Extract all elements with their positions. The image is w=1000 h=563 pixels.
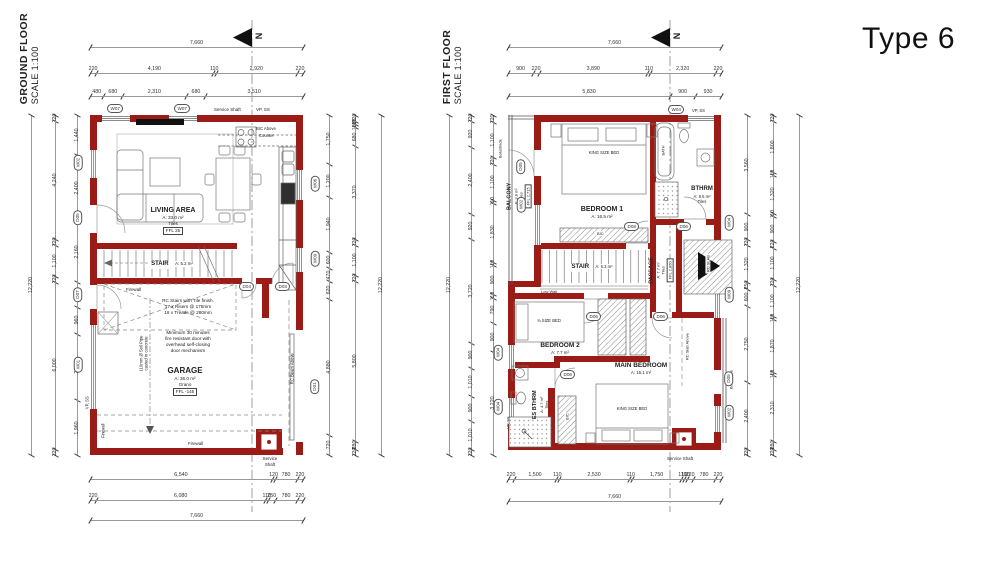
gf-living-block: LIVING AREA A: 33.0 m² Tiles FFL 25 [130, 206, 216, 235]
door-label: D06 [676, 222, 691, 231]
dim-segment: 2,320 [650, 66, 715, 78]
dim-value: 220 [352, 448, 358, 457]
door-label: D06 [586, 312, 601, 321]
dimension-row: 2204,2402201,1002206,000220 [48, 115, 60, 455]
door-label: D08 [624, 222, 639, 231]
dim-segment: 600 [740, 289, 752, 306]
room-area: A: 15.1 m² [598, 370, 684, 376]
ff-main-bed: KING SIZE BED [600, 406, 664, 411]
door-label: D05 [724, 371, 733, 386]
dim-segment: 220 [48, 449, 60, 455]
gf-scale: SCALE 1:100 [30, 4, 40, 104]
dim-segment: 780 [275, 493, 297, 505]
dim-segment: 2,920 [216, 66, 297, 78]
dim-value: 1,100 [490, 175, 496, 188]
dim-segment: 480 [90, 89, 103, 101]
dim-segment: 220 [715, 472, 721, 484]
dim-value: 600 [744, 293, 750, 302]
door-label: D01 [310, 379, 319, 394]
bed-label: KING SIZE BED [600, 406, 664, 411]
dim-segment: 3,560 [740, 115, 752, 214]
ff-esbthrm-block: ES BTHRM A: 4.7 m² Tiles [532, 373, 550, 437]
ff-rc-slab: RC SLAB [705, 244, 710, 284]
dim-value: 1,010 [468, 375, 474, 388]
window-label: W04 [725, 214, 734, 230]
dim-value: 3,560 [744, 158, 750, 171]
dimension-row: 2209202,4009203,7209001,0109001,010220 [464, 115, 476, 455]
dim-segment: 1,320 [766, 175, 778, 212]
room-name: MAIN BEDROOM [598, 362, 684, 370]
dim-segment: 5,800 [348, 281, 360, 441]
dim-value: 1,750 [326, 133, 332, 146]
gf-bic-above-2: Counter [259, 133, 274, 138]
note-line: RC Slab Above [684, 312, 689, 382]
dim-segment: 2,310 [122, 89, 186, 101]
room-finish: Tiles [682, 199, 722, 204]
dim-value: 1,750 [650, 472, 663, 478]
ff-stair-block: STAIR A: 5.3 m² [568, 254, 616, 275]
dim-value: 7,660 [190, 40, 203, 46]
window-label: W04 [494, 344, 503, 360]
dim-segment: 960 [70, 307, 82, 334]
dim-segment: 12,220 [374, 115, 386, 455]
dim-value: 620 [326, 286, 332, 295]
gf-vpss-top: VP, SS [256, 107, 270, 113]
room-ffl: FFL 2,860 [666, 258, 673, 282]
dim-value: 2,310 [770, 401, 776, 414]
room-name: PASSAGE [649, 231, 656, 309]
dim-value: 900 [490, 333, 496, 342]
dim-segment: 1,100 [348, 245, 360, 275]
dim-segment: 900 [464, 343, 476, 368]
room-name: BEDROOM 2 [520, 342, 600, 350]
dim-value: 900 [744, 222, 750, 231]
dim-value: 12,220 [378, 277, 384, 293]
gf-door-note: Minimum 30 minutes fire resistant door w… [140, 330, 236, 354]
room-area: A: 5.2 m² [174, 261, 194, 267]
gf-north-letter: N [253, 33, 263, 40]
dim-segment: 5,830 [508, 89, 670, 101]
note-line: RC Beam Above [289, 329, 294, 409]
door-label: D05 [73, 210, 82, 225]
dimension-row: 3,5609002201,3202506002,7502,400220 [740, 115, 752, 455]
dim-value: 720 [326, 441, 332, 450]
dim-segment: 2,400 [464, 147, 476, 214]
dim-segment: 6,080 [96, 493, 265, 505]
ff-balustrade-balcony: Balustrade [497, 119, 502, 179]
dim-value: 2,750 [744, 337, 750, 350]
dim-value: 900 [490, 275, 496, 284]
dim-segment: 470 [322, 268, 334, 281]
dim-segment: 720 [322, 435, 334, 455]
dim-value: 790 [490, 306, 496, 315]
dim-value: 1,960 [74, 421, 80, 434]
dim-segment: 1,100 [766, 248, 778, 279]
gf-service-shaft-top: Service Shaft [214, 107, 241, 113]
dimension-row: 7,660 [90, 513, 303, 525]
dim-value: 1,320 [744, 257, 750, 270]
dim-segment: 7,660 [508, 40, 721, 52]
window-label: W09 [311, 250, 320, 266]
dim-value: 2,920 [250, 66, 263, 72]
gf-firewall-bottom: Firewall [188, 441, 203, 447]
dim-value: 4,880 [326, 360, 332, 373]
window-label: W02 [74, 154, 83, 170]
dim-value: 220 [52, 448, 58, 457]
gf-stair-block: STAIR A: 5.2 m² [146, 251, 198, 272]
note-line: VP, SS [505, 401, 510, 445]
floor-plan-sheet: Type 6 GROUND FLOOR SCALE 1:100 N FIRST … [0, 0, 1000, 563]
dim-segment: 1,750 [322, 115, 334, 164]
window-label: W04 [494, 398, 503, 414]
dim-segment: 1,750 [632, 472, 681, 484]
dimension-row: 12,220 [24, 115, 36, 455]
note-line: RC SLAB [705, 254, 710, 273]
dim-value: 780 [700, 472, 709, 478]
dim-value: 5,830 [582, 89, 595, 95]
dim-segment: 12,220 [442, 115, 454, 455]
dim-segment: 4,880 [322, 299, 334, 435]
dimension-row: 2201101106803,3702201,1002205,800280220 [348, 115, 360, 455]
dim-value: 220 [296, 493, 305, 499]
dimension-row: 7,660 [508, 40, 721, 52]
dim-segment: 680 [348, 127, 360, 146]
window-label: W02 [725, 404, 734, 420]
dim-segment: 1,100 [486, 122, 498, 157]
door-label: D03 [275, 282, 290, 291]
dim-value: 12,220 [28, 277, 34, 293]
dim-value: 930 [704, 89, 713, 95]
dim-segment: 250 [268, 493, 275, 505]
gf-shaft [261, 434, 277, 450]
dimension-row: 12,220 [792, 115, 804, 455]
room-ffl: FFL 25 [163, 227, 183, 235]
dim-value: 900 [468, 404, 474, 413]
gf-title-block: GROUND FLOOR SCALE 1:100 [18, 4, 40, 104]
bed-label: KING SIZE BED [566, 150, 642, 155]
dim-value: 7,660 [608, 40, 621, 46]
type-label: Type 6 [862, 22, 955, 56]
dim-value: 1,100 [770, 257, 776, 270]
dim-value: 1,440 [74, 128, 80, 141]
dim-value: 1,200 [326, 174, 332, 187]
dim-value: 7,660 [608, 494, 621, 500]
dimension-row: 7,660 [508, 494, 721, 506]
ff-vpss-left: VP, SS [505, 401, 510, 445]
dim-segment: 3,510 [205, 89, 303, 101]
room-name: BTHRM [682, 186, 722, 194]
dim-value: 1,940 [326, 218, 332, 231]
note-line: Firewall [100, 406, 105, 456]
dim-segment: 1,200 [322, 164, 334, 198]
door-label: D07 [73, 287, 82, 302]
gf-stair-note: RC Stairs with Tile finish. 17 x Risers … [140, 298, 236, 316]
dim-segment: 1,800 [766, 121, 778, 172]
dim-value: 3,370 [352, 186, 358, 199]
dimension-row: 12,220 [442, 115, 454, 455]
dim-value: 6,540 [174, 472, 187, 478]
dim-segment: 7,660 [90, 40, 303, 52]
window-label: W06 [311, 175, 320, 191]
gf-soil-note: 110mm Ø Soil Pipe casted in concrete [139, 301, 150, 405]
dimension-row: 2201,5001102,5301101,750110110220780220 [508, 472, 721, 484]
gf-bic-above-1: BIC Above [256, 126, 276, 131]
dim-segment: 12,220 [792, 115, 804, 455]
dim-segment: 680 [186, 89, 205, 101]
room-name: LIVING AREA [130, 206, 216, 215]
window-label: W01 [74, 356, 83, 372]
note-line: casted in concrete [144, 301, 149, 405]
dim-value: 2,530 [587, 472, 600, 478]
room-ffl: FFL -145 [173, 388, 197, 396]
dim-value: 1,870 [770, 339, 776, 352]
dim-segment: 920 [464, 121, 476, 147]
dim-segment: 1,100 [486, 164, 498, 199]
dim-segment: 3,370 [348, 146, 360, 239]
dim-value: 680 [352, 132, 358, 141]
note-line: Shaft [252, 462, 288, 468]
ff-service-shaft: Service Shaft [652, 456, 708, 462]
dim-segment: 220 [297, 66, 303, 78]
dim-value: 2,310 [148, 89, 161, 95]
gf-firewall-left: Firewall [100, 406, 105, 456]
dim-segment: 220 [348, 449, 360, 455]
ff-bed1-bic: BIC [596, 231, 605, 236]
dim-value: 220 [744, 448, 750, 457]
note-line: 16 x Treads @ 280mm [140, 310, 236, 316]
room-area: A: 16.5 m² [560, 214, 644, 220]
ff-bed2-block: BEDROOM 2 A: 7.7 m² [520, 342, 600, 356]
dim-value: 220 [714, 472, 723, 478]
dim-value: 5,800 [352, 355, 358, 368]
dim-value: 2,400 [744, 409, 750, 422]
dim-segment: 220 [464, 449, 476, 455]
dim-value: 1,320 [770, 187, 776, 200]
dim-segment: 220 [297, 493, 303, 505]
dim-segment: 620 [322, 281, 334, 298]
dimension-row: 1,7501,2001,9406004706204,880720 [322, 115, 334, 455]
dim-segment: 250 [740, 282, 752, 289]
dimension-row: 9002203,8901102,320220 [508, 66, 721, 78]
dim-value: 1,100 [770, 294, 776, 307]
ff-low-wall: Low Wall [541, 289, 557, 294]
ff-passage-block: PASSAGE A: 7.7 m² Tiles FFL 2,860 [649, 231, 674, 309]
dim-value: 7,660 [190, 513, 203, 519]
gf-firewall-stair: Firewall [126, 287, 141, 293]
note-line: Balustrade [497, 119, 502, 179]
ff-scale: SCALE 1:100 [453, 4, 463, 104]
dim-value: 12,220 [446, 277, 452, 293]
dim-value: 6,000 [52, 359, 58, 372]
dim-value: 1,100 [52, 254, 58, 267]
dim-value: 3,720 [468, 284, 474, 297]
dim-value: 220 [296, 472, 305, 478]
ff-shaft [676, 432, 692, 446]
ff-main-bic: BIC [564, 399, 569, 435]
dim-segment: 7,660 [90, 513, 303, 525]
dim-segment: 1,010 [464, 421, 476, 449]
room-area: A: 5.3 m² [595, 264, 614, 269]
gf-garage-block: GARAGE A: 36.0 m² Grano FFL -145 [142, 366, 228, 396]
dimension-row: 2204,1901102,920220 [90, 66, 303, 78]
room-name: GARAGE [142, 366, 228, 376]
dim-segment: 4,240 [48, 121, 60, 239]
bed-label: ¾ SIZE BED [536, 318, 562, 323]
gf-title: GROUND FLOOR [18, 4, 30, 104]
dim-value: 1,100 [490, 133, 496, 146]
dim-value: 3,510 [248, 89, 261, 95]
window-label: W04 [668, 105, 684, 114]
dim-value: 780 [282, 493, 291, 499]
dimension-row: 12,220 [374, 115, 386, 455]
dim-value: 900 [468, 351, 474, 360]
dim-value: 220 [468, 448, 474, 457]
dim-value: 1,500 [528, 472, 541, 478]
ff-bthrm-block: BTHRM A: 8.5 m² Tiles [682, 186, 722, 205]
dim-value: 1,010 [468, 428, 474, 441]
room-name: BEDROOM 1 [560, 205, 644, 214]
note-line: BIC [564, 412, 569, 421]
window-label: W07 [174, 104, 190, 113]
dim-segment: 1,870 [766, 319, 778, 372]
dim-value: 470 [326, 270, 332, 279]
dim-value: 600 [326, 255, 332, 264]
dim-value: 4,190 [148, 66, 161, 72]
dim-segment: 680 [103, 89, 122, 101]
dim-segment: 2,750 [740, 306, 752, 383]
dim-segment: 220 [766, 449, 778, 455]
dim-segment: 6,540 [90, 472, 272, 484]
dim-segment: 12,220 [24, 115, 36, 455]
room-name: ES BTHRM [532, 373, 539, 437]
ff-title: FIRST FLOOR [441, 4, 453, 104]
dim-segment: 1,100 [766, 285, 778, 316]
dim-segment: 790 [486, 298, 498, 323]
dim-segment: 920 [464, 214, 476, 240]
dim-value: 220 [296, 66, 305, 72]
ff-vpss-top: VP, SS [692, 108, 705, 113]
dim-value: 900 [770, 224, 776, 233]
window-label: W02 [517, 196, 526, 212]
dimension-row: 4806802,3106803,510 [90, 89, 303, 101]
dim-value: 920 [468, 222, 474, 231]
room-name: STAIR [570, 264, 590, 272]
dim-segment: 780 [693, 472, 715, 484]
dim-segment: 2,400 [740, 382, 752, 449]
dim-value: 900 [516, 66, 525, 72]
dim-value: 1,800 [770, 140, 776, 153]
ff-bath-label: BATH [662, 132, 667, 168]
window-label: W07 [107, 104, 123, 113]
window-label: W09 [725, 286, 734, 302]
dimension-row: 7,660 [90, 40, 303, 52]
dim-value: 2,160 [74, 245, 80, 258]
dim-value: 960 [74, 316, 80, 325]
dimension-row: 2201,8001101,3201109002201,1002201,10011… [766, 115, 778, 455]
dim-segment: 1,440 [70, 115, 82, 155]
door-label: D05 [516, 159, 525, 174]
dim-segment: 6,000 [48, 282, 60, 449]
dim-value: 920 [468, 130, 474, 139]
dim-segment: 7,660 [508, 494, 721, 506]
dim-value: 2,320 [676, 66, 689, 72]
gf-service-shaft-bottom: Service Shaft [252, 456, 288, 467]
dim-segment: 1,010 [464, 368, 476, 396]
dim-segment: 900 [464, 396, 476, 421]
note-line: VP, SS [84, 378, 89, 428]
dim-segment: 1,500 [514, 472, 556, 484]
room-finish: Tiles [545, 373, 550, 437]
dim-segment: 1,100 [48, 245, 60, 276]
dim-value: 1,830 [490, 226, 496, 239]
dim-segment: 2,160 [70, 222, 82, 282]
dim-value: 12,220 [796, 277, 802, 293]
ff-main-block: MAIN BEDROOM A: 15.1 m² [598, 362, 684, 376]
door-label: D06 [653, 312, 668, 321]
dim-value: 2,400 [74, 182, 80, 195]
dim-segment: 900 [740, 214, 752, 239]
ff-north-letter: N [671, 33, 681, 40]
dimension-row: 6,540120780220 [90, 472, 303, 484]
note-line: door mechanism [140, 348, 236, 354]
dim-value: 6,080 [174, 493, 187, 499]
dim-segment: 1,320 [740, 245, 752, 282]
room-name: STAIR [150, 261, 170, 269]
dim-segment: 1,830 [486, 203, 498, 262]
gf-vpss-left: VP, SS [84, 378, 89, 428]
dim-segment: 1,940 [322, 197, 334, 251]
room-name: BALCONY [507, 158, 514, 234]
door-label: D06 [560, 370, 575, 379]
dim-segment: 3,720 [464, 239, 476, 343]
fixture-label: BATH [662, 132, 667, 168]
dim-segment: 600 [322, 252, 334, 269]
dim-segment: 3,890 [539, 66, 647, 78]
dim-segment: 220 [740, 449, 752, 455]
note-line: Service Shaft [652, 456, 708, 462]
dim-value: 680 [108, 89, 117, 95]
ff-title-block: FIRST FLOOR SCALE 1:100 [441, 4, 463, 104]
dim-value: 220 [770, 447, 776, 456]
dim-value: 220 [714, 66, 723, 72]
dim-value: 900 [678, 89, 687, 95]
dim-value: 2,400 [468, 173, 474, 186]
dim-segment: 220 [486, 115, 498, 122]
dim-value: 3,890 [587, 66, 600, 72]
dim-segment: 4,190 [96, 66, 213, 78]
dim-segment: 220 [486, 157, 498, 164]
dimension-row: 2206,080110250780220 [90, 493, 303, 505]
ff-bed1-block: BEDROOM 1 A: 16.5 m² [560, 205, 644, 220]
gf-walls [90, 115, 303, 455]
dim-segment: 220 [297, 472, 303, 484]
dim-segment: 1,960 [70, 400, 82, 455]
dim-segment: 900 [670, 89, 695, 101]
room-area: A: 7.7 m² [520, 350, 600, 356]
dim-segment: 900 [486, 265, 498, 294]
ff-rc-slab-above: RC Slab Above [684, 312, 689, 382]
dim-segment: 900 [766, 216, 778, 242]
dim-segment: 900 [508, 66, 533, 78]
dim-value: 480 [92, 89, 101, 95]
dim-segment: 220 [715, 66, 721, 78]
gf-rc-beam: RC Beam Above [289, 329, 294, 409]
dim-segment: 780 [275, 472, 297, 484]
dim-value: 4,240 [52, 173, 58, 186]
ff-bed2-bed: ¾ SIZE BED [518, 318, 580, 323]
dim-segment: 930 [695, 89, 721, 101]
ff-bed1-bed: KING SIZE BED [566, 150, 642, 155]
